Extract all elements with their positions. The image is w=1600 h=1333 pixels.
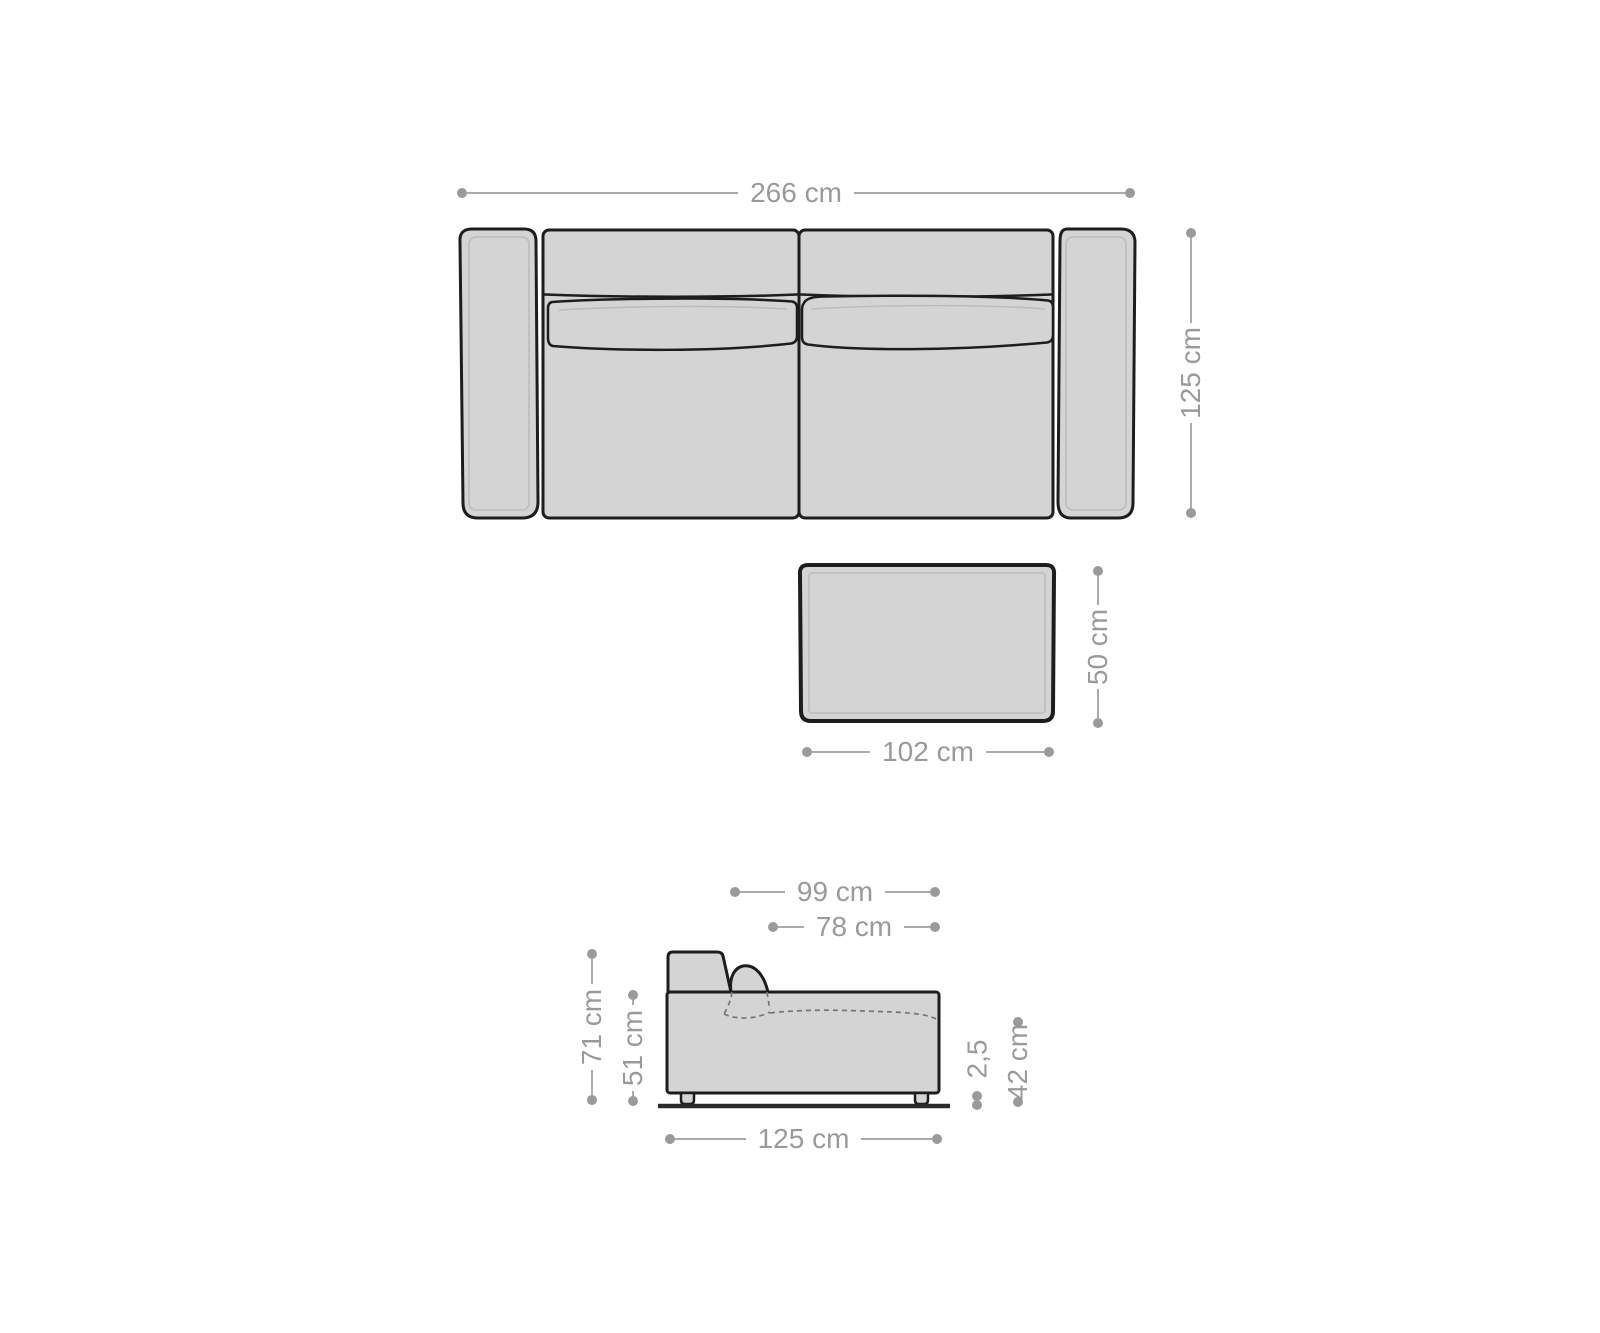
dimension-endpoint-dot [1044, 747, 1054, 757]
dimension-endpoint-dot [457, 188, 467, 198]
dimension-endpoint-dot [1093, 566, 1103, 576]
sofa-depth-dimension: 125 cm [1177, 228, 1205, 518]
dimension-endpoint-dot [932, 1134, 942, 1144]
dimension-label-wrap: 2,5 [963, 1035, 991, 1083]
dimension-label-wrap: 51 cm [619, 1005, 647, 1091]
dimension-line [740, 891, 785, 893]
table-depth-dimension: 50 cm [1084, 566, 1112, 728]
dimension-label-wrap: 71 cm [578, 984, 606, 1070]
table-width-dimension: 102 cm [802, 738, 1054, 766]
dimension-endpoint-dot [930, 922, 940, 932]
furniture-dimension-diagram: 266 cm 125 cm 50 cm 102 cm [0, 0, 1600, 1333]
dimension-label: 99 cm [797, 878, 873, 906]
dimension-endpoint-dot [1186, 228, 1196, 238]
dimension-label: 78 cm [816, 913, 892, 941]
dimension-label: 42 cm [1004, 1024, 1032, 1100]
side-pillow [731, 966, 768, 992]
dimension-endpoint-dot [1186, 508, 1196, 518]
dimension-line [904, 926, 930, 928]
dimension-line [861, 1138, 932, 1140]
side-total-depth-dimension: 125 cm [665, 1125, 942, 1153]
dimension-label: 266 cm [750, 179, 842, 207]
dimension-line [986, 751, 1044, 753]
side-seat-height-dimension: 42 cm [1004, 1017, 1032, 1107]
coffee-table-top-view-drawing [794, 559, 1060, 727]
dimension-label-wrap: 50 cm [1084, 605, 1112, 689]
side-backrest [668, 952, 731, 992]
dimension-endpoint-dot [972, 1100, 982, 1110]
armrest-left [460, 229, 538, 518]
side-armrest-height-dimension: 51 cm [619, 990, 647, 1106]
sofa-left-section [543, 230, 799, 518]
dimension-endpoint-dot [628, 1096, 638, 1106]
dimension-label: 2,5 [963, 1040, 991, 1079]
dimension-line [675, 1138, 746, 1140]
dimension-endpoint-dot [802, 747, 812, 757]
side-body [667, 992, 939, 1093]
sofa-right-section [799, 230, 1053, 518]
dimension-line [778, 926, 804, 928]
dimension-label: 51 cm [619, 1010, 647, 1086]
side-depth-with-backrest-dimension: 99 cm [730, 878, 940, 906]
dimension-line [467, 192, 738, 194]
side-leg-height-dimension: 2,5 [963, 1028, 991, 1110]
dimension-line [885, 891, 930, 893]
table-top [800, 565, 1054, 721]
dimension-line [812, 751, 870, 753]
dimension-endpoint-dot [628, 990, 638, 1000]
dimension-endpoint-dot [665, 1134, 675, 1144]
sofa-width-dimension: 266 cm [457, 179, 1135, 207]
dimension-label: 125 cm [1177, 327, 1205, 419]
dimension-endpoint-dot [1093, 718, 1103, 728]
dimension-label-wrap: 42 cm [1004, 1027, 1032, 1097]
dimension-line [1190, 423, 1192, 508]
dimension-line [1097, 576, 1099, 605]
dimension-line [591, 1070, 593, 1095]
side-leg-back [915, 1093, 928, 1104]
dimension-line [1097, 689, 1099, 718]
seat-cushion-right [802, 296, 1053, 349]
dimension-line [1190, 238, 1192, 323]
dimension-label-wrap: 125 cm [1177, 323, 1205, 423]
side-total-height-dimension: 71 cm [578, 949, 606, 1105]
dimension-endpoint-dot [587, 949, 597, 959]
dimension-label: 125 cm [758, 1125, 850, 1153]
dimension-endpoint-dot [730, 887, 740, 897]
dimension-line [854, 192, 1125, 194]
dimension-label: 50 cm [1084, 609, 1112, 685]
dimension-endpoint-dot [930, 887, 940, 897]
armrest-right [1058, 229, 1135, 518]
sofa-side-view-drawing [652, 942, 958, 1112]
sofa-top-view-drawing [455, 224, 1141, 524]
dimension-endpoint-dot [1125, 188, 1135, 198]
side-seat-depth-dimension: 78 cm [768, 913, 940, 941]
dimension-label: 71 cm [578, 989, 606, 1065]
dimension-label: 102 cm [882, 738, 974, 766]
dimension-endpoint-dot [768, 922, 778, 932]
dimension-line [591, 959, 593, 984]
side-leg-front [681, 1093, 694, 1104]
dimension-endpoint-dot [587, 1095, 597, 1105]
